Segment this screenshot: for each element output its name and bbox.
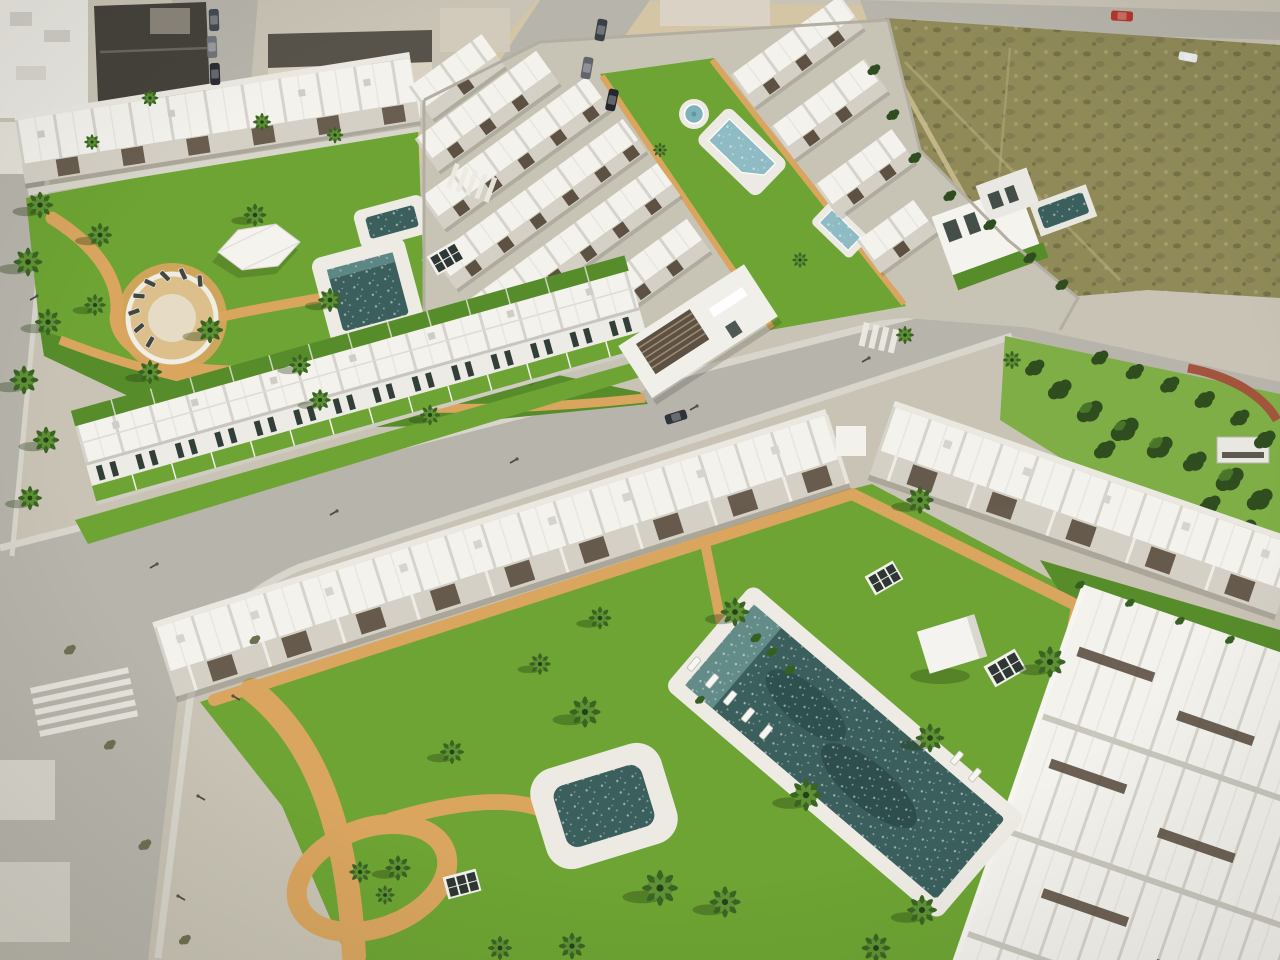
vignette-overlay: [0, 0, 1280, 960]
aerial-render-image: [0, 0, 1280, 960]
